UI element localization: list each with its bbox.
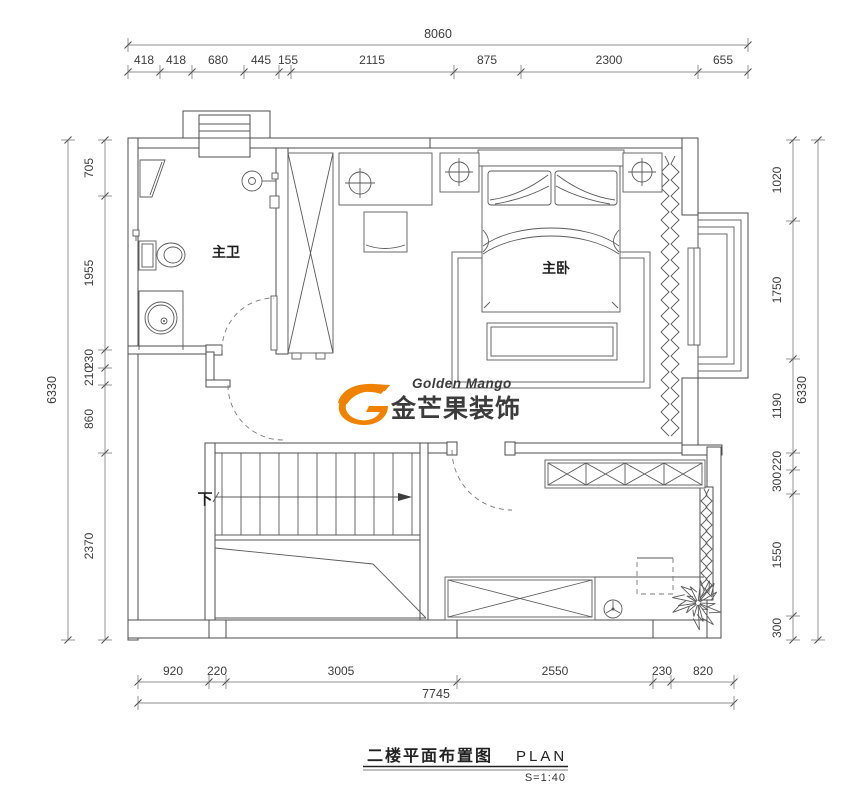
- dimensions-top: 8060 418 418 680 445 155 2115 875 2300 6…: [128, 27, 748, 79]
- svg-text:2115: 2115: [359, 53, 385, 67]
- curtain-zigzag: [671, 156, 679, 436]
- drawing-title: 二楼平面布置图: [367, 746, 493, 765]
- svg-text:2300: 2300: [596, 53, 623, 67]
- svg-text:418: 418: [166, 53, 186, 67]
- room-label-bathroom: 主卫: [212, 244, 240, 260]
- svg-text:300: 300: [770, 472, 784, 492]
- svg-text:820: 820: [693, 664, 713, 678]
- dimensions-bottom: 920 220 3005 2550 230 820 7745: [138, 664, 734, 710]
- svg-text:3005: 3005: [328, 664, 355, 678]
- svg-text:230: 230: [82, 349, 96, 369]
- svg-text:210: 210: [82, 366, 96, 386]
- side-table: [637, 558, 673, 594]
- svg-text:920: 920: [163, 664, 183, 678]
- flue-shaft: [199, 115, 250, 157]
- wardrobe-tall: [288, 153, 333, 359]
- svg-text:1020: 1020: [770, 166, 784, 193]
- logo-name-cn: 金芒果: [390, 394, 469, 423]
- dimensions-right: 1020 1750 1190 220 300 1550 300 6330: [770, 140, 825, 640]
- svg-text:220: 220: [770, 451, 784, 471]
- floor-plan-page: 8060 418 418 680 445 155 2115 875 2300 6…: [0, 0, 850, 790]
- toilet-icon: [133, 230, 185, 270]
- drawing-title-en: PLAN: [516, 748, 567, 765]
- hall-door-swing: [228, 385, 283, 440]
- shower-icon: [242, 171, 279, 208]
- stool: [364, 212, 407, 252]
- staircase: 下: [197, 453, 426, 618]
- svg-text:230: 230: [652, 664, 672, 678]
- shower-corner: [140, 160, 165, 197]
- bay-window: [688, 213, 748, 378]
- dimensions-left: 705 1955 230 210 860 2370 6330: [45, 140, 112, 640]
- svg-text:445: 445: [251, 53, 271, 67]
- svg-text:875: 875: [477, 53, 497, 67]
- cabinet-bottom: [445, 577, 595, 620]
- svg-text:1550: 1550: [770, 541, 784, 568]
- dresser-desk: [339, 153, 432, 205]
- room-label-bedroom: 主卧: [542, 260, 570, 276]
- dressing-area: [288, 153, 432, 359]
- family-room: [445, 460, 721, 630]
- master-bathroom: 主卫: [133, 160, 279, 350]
- floor-plan-canvas: 8060 418 418 680 445 155 2115 875 2300 6…: [0, 0, 850, 790]
- logo-suffix-cn: 装饰: [469, 395, 521, 423]
- bedroom-door-swing: [452, 450, 512, 510]
- wardrobe-top: [545, 460, 705, 488]
- door-jamb: [505, 442, 515, 455]
- dim-left-total: 6330: [45, 376, 59, 404]
- drawing-scale: S=1:40: [525, 772, 566, 784]
- stair-direction-arrow: [213, 492, 412, 502]
- svg-text:2370: 2370: [82, 532, 96, 559]
- golden-mango-logo: Golden Mango 金芒果 装饰: [338, 376, 521, 425]
- nightstand-left: [440, 153, 479, 192]
- svg-text:418: 418: [134, 53, 154, 67]
- master-bedroom: 主卧: [440, 150, 679, 436]
- svg-text:1750: 1750: [770, 276, 784, 303]
- golden-mango-logo-icon: [338, 384, 390, 425]
- curtain-zigzag: [661, 156, 669, 436]
- stair-treads: [222, 453, 412, 535]
- svg-text:705: 705: [82, 158, 96, 178]
- svg-text:860: 860: [82, 409, 96, 429]
- bed-icon: [478, 150, 624, 312]
- svg-text:1955: 1955: [82, 259, 96, 286]
- dim-bottom-total: 7745: [422, 687, 450, 701]
- svg-text:680: 680: [208, 53, 228, 67]
- bench: [487, 323, 617, 360]
- svg-text:220: 220: [207, 664, 227, 678]
- bathroom-door-leaf: [271, 296, 277, 350]
- sink-icon: [139, 291, 183, 350]
- svg-text:300: 300: [770, 618, 784, 638]
- svg-text:155: 155: [278, 53, 298, 67]
- bathroom-door-swing: [222, 298, 274, 350]
- floor-drain-icon: [604, 600, 622, 618]
- nightstand-right: [623, 153, 662, 192]
- dim-right-total: 6330: [795, 376, 809, 404]
- dim-top-total: 8060: [424, 27, 452, 41]
- logo-name-en: Golden Mango: [412, 376, 512, 391]
- svg-text:2550: 2550: [542, 664, 569, 678]
- title-block: 二楼平面布置图 PLAN S=1:40: [363, 746, 568, 784]
- svg-text:655: 655: [713, 53, 733, 67]
- svg-text:1190: 1190: [770, 393, 784, 419]
- stair-down-label: 下: [197, 491, 212, 508]
